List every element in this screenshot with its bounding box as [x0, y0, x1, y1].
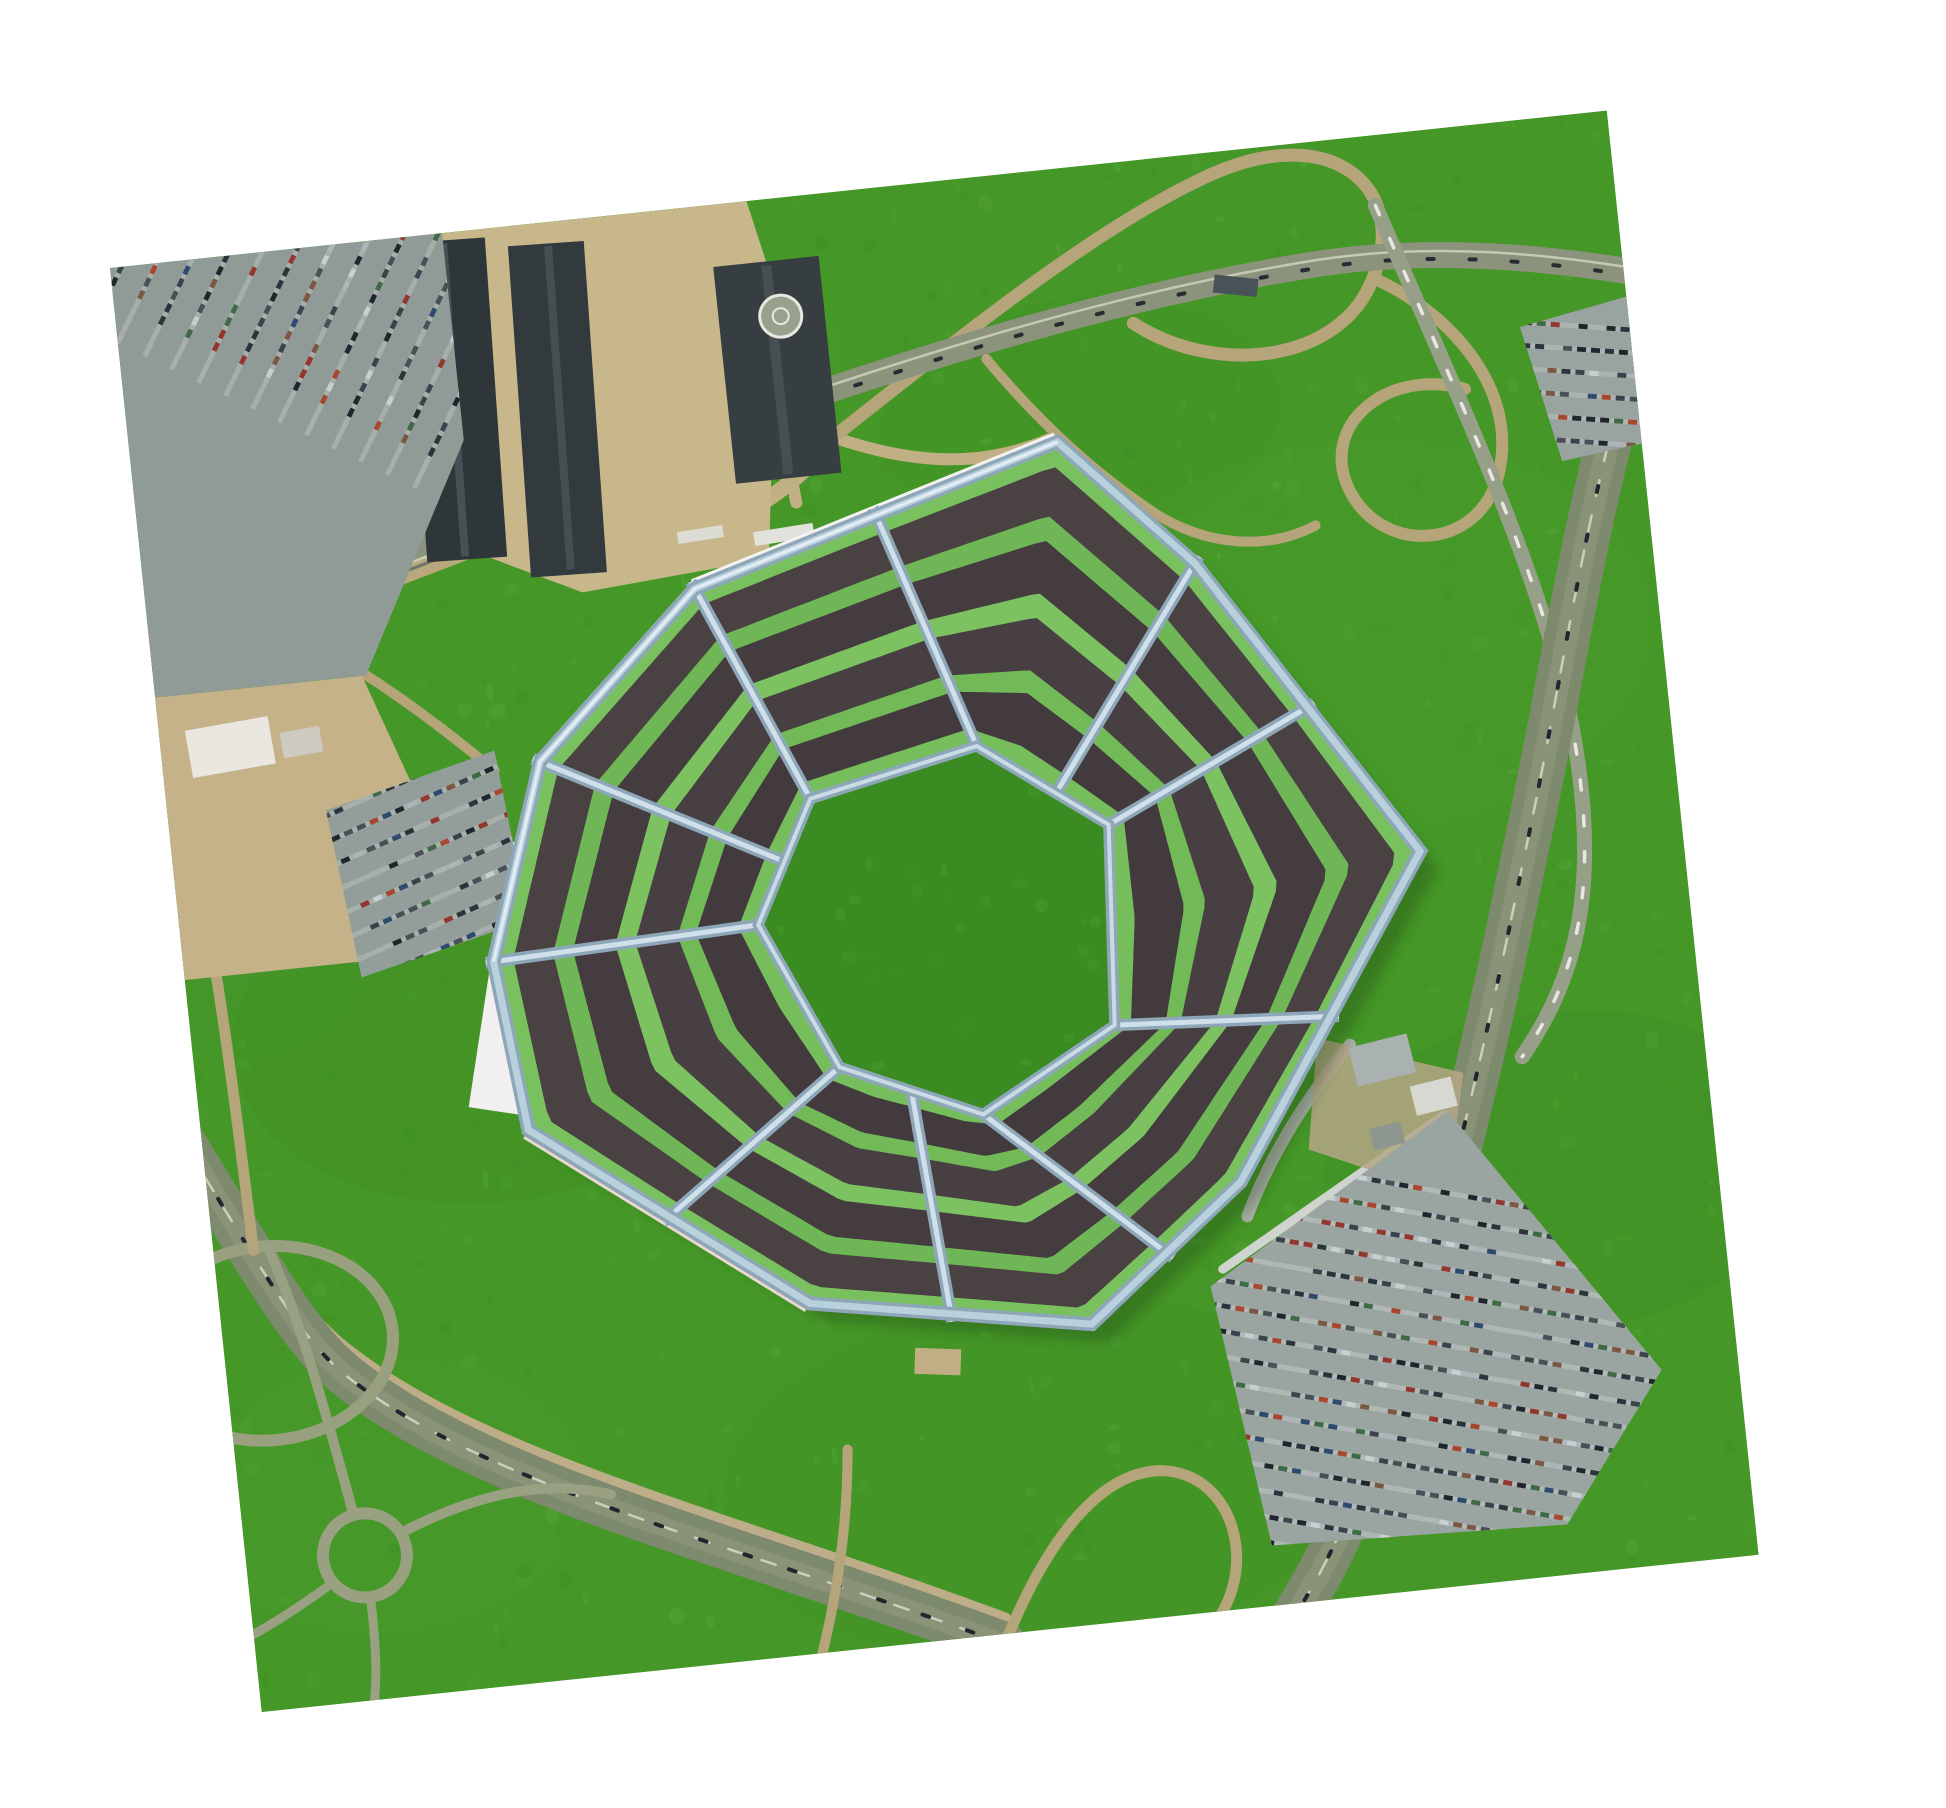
car [147, 201, 155, 211]
car [436, 155, 444, 165]
car [1628, 1578, 1638, 1584]
car [385, 192, 393, 202]
car [1536, 1613, 1546, 1619]
car [403, 155, 411, 165]
car [490, 182, 498, 192]
car [129, 239, 137, 249]
car [641, 146, 649, 156]
car [701, 160, 709, 170]
car [304, 153, 312, 163]
car [1522, 1610, 1532, 1616]
car [482, 131, 490, 141]
car [1556, 438, 1565, 443]
car [1481, 1603, 1491, 1609]
car [548, 132, 556, 142]
car [1596, 1598, 1606, 1604]
car [1623, 1603, 1633, 1609]
car [157, 112, 165, 122]
car [292, 178, 300, 188]
car [1610, 1600, 1620, 1606]
car [349, 128, 357, 138]
car [1495, 1605, 1505, 1611]
car [1541, 1588, 1551, 1594]
car [686, 121, 694, 131]
car [1527, 1586, 1537, 1592]
car [205, 151, 213, 161]
car [430, 168, 438, 178]
car [767, 161, 775, 171]
car [283, 127, 291, 137]
car [110, 289, 112, 299]
car [653, 121, 661, 131]
car [162, 239, 170, 249]
car [110, 213, 116, 223]
car [713, 135, 721, 145]
car [343, 141, 351, 151]
car [1582, 1595, 1592, 1601]
car [530, 170, 538, 180]
car [1631, 374, 1640, 379]
annex-building [914, 1348, 961, 1376]
car [1563, 346, 1572, 351]
car [707, 147, 715, 157]
car [1578, 324, 1587, 329]
car [428, 111, 436, 115]
car [186, 189, 194, 199]
car [145, 138, 153, 148]
car [355, 116, 363, 126]
car [693, 111, 701, 119]
car [517, 195, 525, 205]
car [590, 183, 598, 193]
car [1620, 327, 1629, 332]
car [1630, 397, 1639, 402]
car [629, 171, 637, 181]
car [560, 111, 568, 117]
car [476, 143, 484, 153]
car [1605, 349, 1614, 354]
car [178, 138, 186, 148]
car [550, 195, 558, 205]
car [1509, 1608, 1519, 1614]
aerial-photo [110, 111, 1759, 1712]
car [234, 228, 242, 238]
car [1454, 1598, 1464, 1604]
car [1598, 440, 1607, 445]
car [1600, 418, 1609, 423]
car [331, 166, 339, 176]
car [1619, 350, 1628, 355]
car [165, 163, 173, 173]
car [240, 215, 248, 225]
car [366, 230, 374, 240]
car [122, 251, 130, 261]
car [138, 150, 146, 160]
car [300, 229, 308, 239]
car [523, 182, 531, 192]
car [228, 241, 236, 251]
car [449, 130, 457, 140]
car [412, 206, 420, 216]
car [223, 114, 231, 124]
car [418, 193, 426, 203]
car [246, 203, 254, 213]
car [256, 114, 264, 124]
car [455, 118, 463, 128]
car [298, 166, 306, 176]
car [1628, 419, 1637, 424]
car [556, 183, 564, 193]
car [608, 146, 616, 156]
car [439, 219, 447, 229]
car [232, 164, 240, 174]
car [463, 168, 471, 178]
car [424, 180, 432, 190]
car [1612, 441, 1621, 446]
car [273, 216, 281, 226]
car [225, 177, 233, 187]
car [1606, 326, 1615, 331]
car [484, 194, 492, 204]
car [337, 154, 345, 164]
car [132, 163, 140, 173]
car [469, 156, 477, 166]
car [596, 171, 604, 181]
car [286, 191, 294, 201]
car [583, 196, 591, 206]
car [617, 196, 625, 206]
car [1572, 416, 1581, 421]
car [511, 207, 519, 217]
car [141, 214, 149, 224]
car [352, 192, 360, 202]
car [1584, 439, 1593, 444]
car [587, 120, 595, 130]
car [192, 176, 200, 186]
car [135, 226, 143, 236]
car [472, 219, 480, 229]
car [442, 143, 450, 153]
car [1440, 1596, 1450, 1602]
car [1564, 1617, 1574, 1623]
car [156, 252, 164, 262]
car [1546, 391, 1555, 396]
car [397, 167, 405, 177]
car [333, 230, 341, 240]
aerial-photo-canvas [110, 111, 1759, 1712]
car [1575, 370, 1584, 375]
car [1561, 369, 1570, 374]
car [747, 135, 755, 145]
car [409, 142, 417, 152]
car [391, 180, 399, 190]
car [325, 179, 333, 189]
page-background [0, 0, 1946, 1808]
car [362, 111, 370, 114]
car [252, 190, 260, 200]
car [1570, 439, 1579, 444]
car [761, 174, 769, 184]
car [1614, 1576, 1624, 1582]
car [329, 111, 337, 113]
car [503, 156, 511, 166]
car [457, 181, 465, 191]
car [416, 130, 424, 140]
car [213, 202, 221, 212]
car [201, 227, 209, 237]
car [406, 218, 414, 228]
car [262, 111, 270, 112]
car [265, 165, 273, 175]
car [1426, 1593, 1436, 1599]
car [1600, 1573, 1610, 1579]
car [544, 208, 552, 218]
car [1602, 395, 1611, 400]
car [1554, 1590, 1564, 1596]
car [695, 172, 703, 182]
car [370, 154, 378, 164]
car [1619, 1627, 1629, 1633]
car [515, 131, 523, 141]
car [569, 158, 577, 168]
car [509, 144, 517, 154]
car [316, 128, 324, 138]
car [238, 152, 246, 162]
car [662, 172, 670, 182]
car [728, 173, 736, 183]
car [1551, 322, 1560, 327]
car [310, 140, 318, 150]
car [623, 184, 631, 194]
car [614, 133, 622, 143]
car [244, 139, 252, 149]
car [126, 175, 134, 185]
car [1641, 1580, 1651, 1586]
car [1588, 394, 1597, 399]
car [174, 214, 182, 224]
car [379, 205, 387, 215]
car [289, 115, 297, 125]
car [720, 122, 728, 132]
car [1617, 373, 1626, 378]
car [461, 111, 469, 115]
car [373, 218, 381, 228]
car [577, 208, 585, 218]
car [389, 116, 397, 126]
car [1586, 417, 1595, 422]
car [313, 204, 321, 214]
car [180, 202, 188, 212]
car [322, 115, 330, 125]
car [120, 188, 128, 198]
car [593, 111, 601, 118]
car [1550, 1615, 1560, 1621]
car [451, 194, 459, 204]
car [1467, 1600, 1477, 1606]
car [626, 111, 634, 118]
car [527, 111, 535, 117]
car [1605, 1625, 1615, 1631]
car [306, 216, 314, 226]
car [1560, 392, 1569, 397]
car [602, 158, 610, 168]
car [250, 127, 258, 137]
car [339, 217, 347, 227]
car [1589, 371, 1598, 376]
car [1616, 396, 1625, 401]
car [740, 148, 748, 158]
car [650, 197, 658, 207]
car [1591, 348, 1600, 353]
car [1547, 368, 1556, 373]
car [277, 140, 285, 150]
car [376, 142, 384, 152]
car [1578, 1620, 1588, 1626]
car [755, 186, 763, 196]
car [1558, 415, 1567, 420]
car [734, 160, 742, 170]
car [774, 148, 782, 158]
car [364, 167, 372, 177]
car [358, 179, 366, 189]
car [674, 147, 682, 157]
car [172, 151, 180, 161]
car [689, 185, 697, 195]
car [199, 164, 207, 174]
car [1577, 347, 1586, 352]
car [1535, 344, 1544, 349]
car [211, 139, 219, 149]
car [219, 190, 227, 200]
car [445, 206, 453, 216]
car [722, 186, 730, 196]
car [656, 184, 664, 194]
car [563, 170, 571, 180]
car [1614, 418, 1623, 423]
car [319, 191, 327, 201]
car [267, 228, 275, 238]
car [581, 132, 589, 142]
car [536, 157, 544, 167]
car [1568, 1593, 1578, 1599]
car [1634, 328, 1643, 333]
car [153, 188, 161, 198]
car [647, 134, 655, 144]
